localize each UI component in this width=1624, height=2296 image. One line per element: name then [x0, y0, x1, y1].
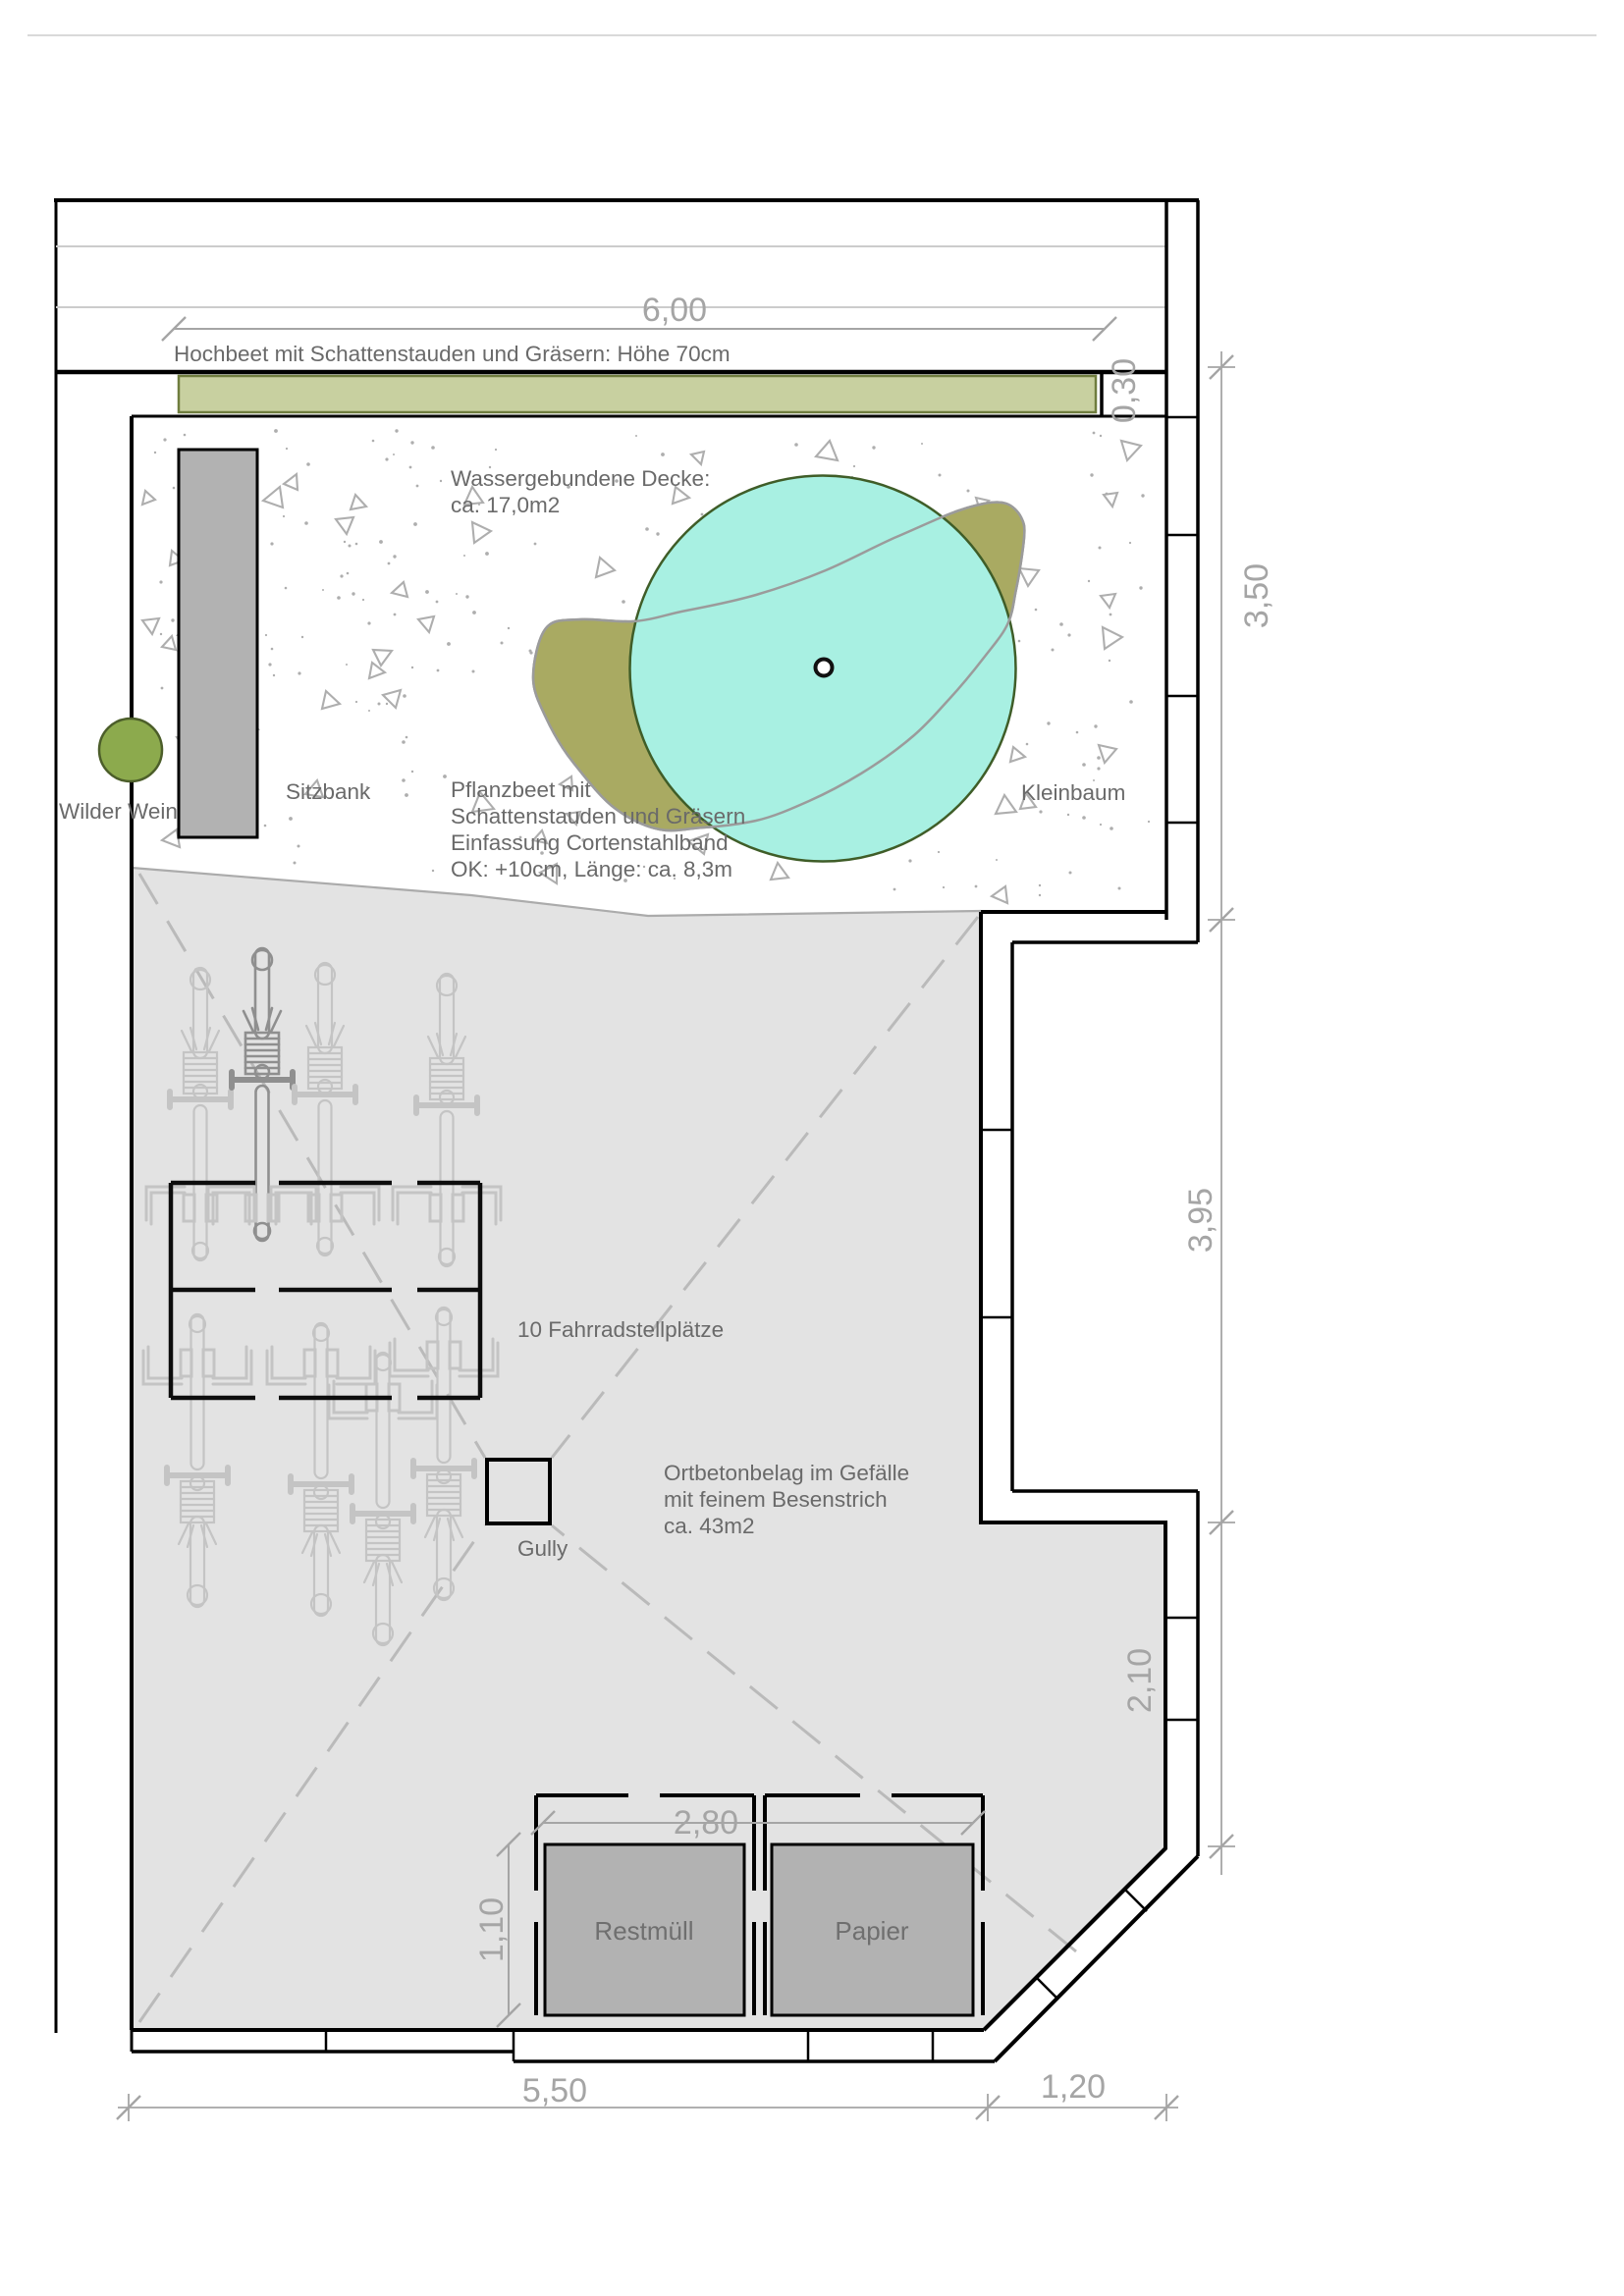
svg-text:1,20: 1,20: [1041, 2068, 1106, 2106]
svg-text:mit feinem Besenstrich: mit feinem Besenstrich: [664, 1487, 888, 1512]
svg-text:Sitzbank: Sitzbank: [286, 779, 371, 804]
svg-text:Pflanzbeet mit: Pflanzbeet mit: [451, 777, 591, 802]
svg-text:Restmüll: Restmüll: [594, 1916, 693, 1946]
svg-text:Kleinbaum: Kleinbaum: [1021, 780, 1125, 805]
svg-text:2,10: 2,10: [1121, 1648, 1159, 1713]
svg-text:ca. 43m2: ca. 43m2: [664, 1514, 755, 1538]
svg-text:Papier: Papier: [835, 1916, 908, 1946]
svg-text:Wassergebundene Decke:: Wassergebundene Decke:: [451, 466, 710, 491]
svg-text:1,10: 1,10: [473, 1897, 511, 1962]
svg-text:3,95: 3,95: [1182, 1188, 1219, 1253]
svg-text:OK: +10cm, Länge: ca. 8,3m: OK: +10cm, Länge: ca. 8,3m: [451, 857, 732, 881]
svg-text:Ortbetonbelag im Gefälle: Ortbetonbelag im Gefälle: [664, 1461, 909, 1485]
svg-text:5,50: 5,50: [522, 2072, 587, 2109]
svg-text:10 Fahrradstellplätze: 10 Fahrradstellplätze: [517, 1317, 724, 1342]
svg-text:Hochbeet mit Schattenstauden u: Hochbeet mit Schattenstauden und Gräsern…: [174, 342, 731, 366]
svg-text:Gully: Gully: [517, 1536, 568, 1561]
svg-text:Schattenstauden und Gräsern: Schattenstauden und Gräsern: [451, 804, 745, 828]
svg-text:6,00: 6,00: [642, 292, 707, 329]
svg-text:Wilder Wein: Wilder Wein: [59, 799, 178, 824]
svg-text:Einfassung Cortenstahlband: Einfassung Cortenstahlband: [451, 830, 729, 855]
svg-text:0,30: 0,30: [1106, 358, 1143, 423]
svg-text:2,80: 2,80: [674, 1804, 738, 1842]
svg-text:3,50: 3,50: [1238, 563, 1275, 628]
svg-text:ca. 17,0m2: ca. 17,0m2: [451, 493, 560, 517]
